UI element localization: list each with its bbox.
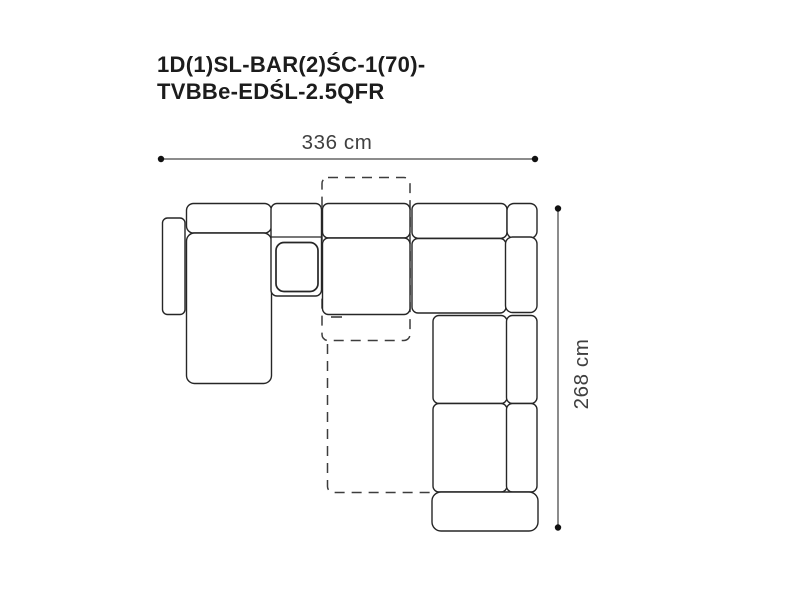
width-dimension-label: 336 cm [302,131,373,154]
right-row2-backrest [507,404,538,493]
middle-backrest [323,204,411,239]
height-dimension: 268 cm [555,205,593,530]
chaise-seat [187,233,272,384]
bar-module-inner [276,243,318,292]
bed-extension-outline-bottom [328,344,434,493]
width-dimension-dot-left [158,156,164,162]
right-row1-seat [433,316,507,404]
left-armrest [163,218,186,315]
height-dimension-dot-bottom [555,524,561,530]
right-row1-backrest [507,316,538,404]
sofa-technical-drawing: 336 cm 268 cm [0,0,800,600]
right-row2-seat [433,404,507,493]
width-dimension-dot-right [532,156,538,162]
corner-seat [412,239,506,314]
bottom-armrest [432,492,538,531]
width-dimension: 336 cm [158,131,538,162]
sofa-modules [163,204,539,532]
chaise-backrest [187,204,272,234]
height-dimension-label: 268 cm [570,339,593,410]
corner-backrest [412,204,507,239]
height-dimension-dot-top [555,205,561,211]
middle-seat [323,238,411,315]
right-backrest [506,237,538,313]
sofa-dimension-diagram-page: 1D(1)SL-BAR(2)ŚC-1(70)- TVBBe-EDŚL-2.5QF… [0,0,800,600]
corner-block [507,204,537,239]
